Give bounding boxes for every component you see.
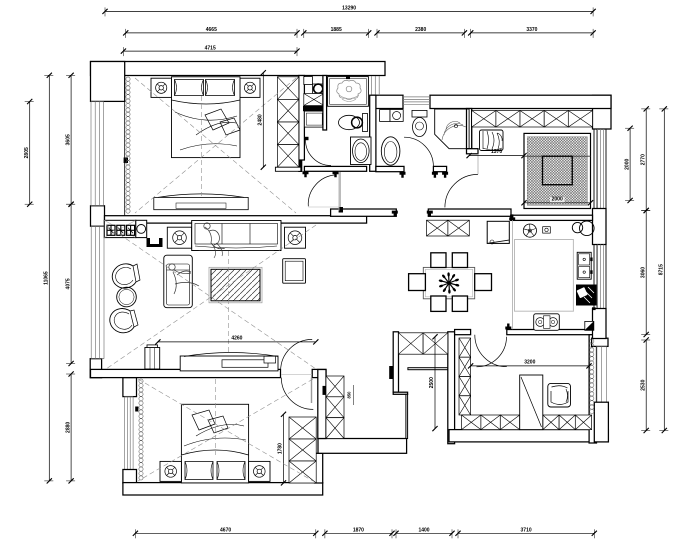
svg-text:4260: 4260 xyxy=(231,335,242,341)
svg-text:1400: 1400 xyxy=(418,527,429,533)
svg-text:3060: 3060 xyxy=(640,267,646,278)
svg-text:1885: 1885 xyxy=(331,27,342,33)
svg-text:13290: 13290 xyxy=(342,5,356,11)
svg-text:2805: 2805 xyxy=(24,147,30,158)
svg-text:8715: 8715 xyxy=(659,264,665,275)
svg-text:3370: 3370 xyxy=(526,27,537,33)
svg-text:2380: 2380 xyxy=(415,27,426,33)
svg-text:1870: 1870 xyxy=(353,527,364,533)
svg-text:4665: 4665 xyxy=(206,27,217,33)
svg-text:1780: 1780 xyxy=(278,443,284,454)
svg-text:4670: 4670 xyxy=(220,527,231,533)
svg-text:2480: 2480 xyxy=(258,114,264,125)
svg-text:850: 850 xyxy=(347,391,352,399)
svg-text:3200: 3200 xyxy=(524,359,535,365)
svg-text:11065: 11065 xyxy=(44,271,50,285)
svg-text:2770: 2770 xyxy=(640,154,646,165)
svg-text:2000: 2000 xyxy=(624,159,630,170)
svg-text:2000: 2000 xyxy=(552,196,563,202)
svg-text:2500: 2500 xyxy=(429,377,435,388)
svg-text:2880: 2880 xyxy=(65,422,71,433)
svg-text:2530: 2530 xyxy=(640,379,646,390)
svg-text:4075: 4075 xyxy=(65,278,71,289)
svg-text:3710: 3710 xyxy=(521,527,532,533)
svg-text:1370: 1370 xyxy=(491,149,502,155)
svg-text:3605: 3605 xyxy=(65,134,71,145)
svg-text:4715: 4715 xyxy=(205,45,216,51)
